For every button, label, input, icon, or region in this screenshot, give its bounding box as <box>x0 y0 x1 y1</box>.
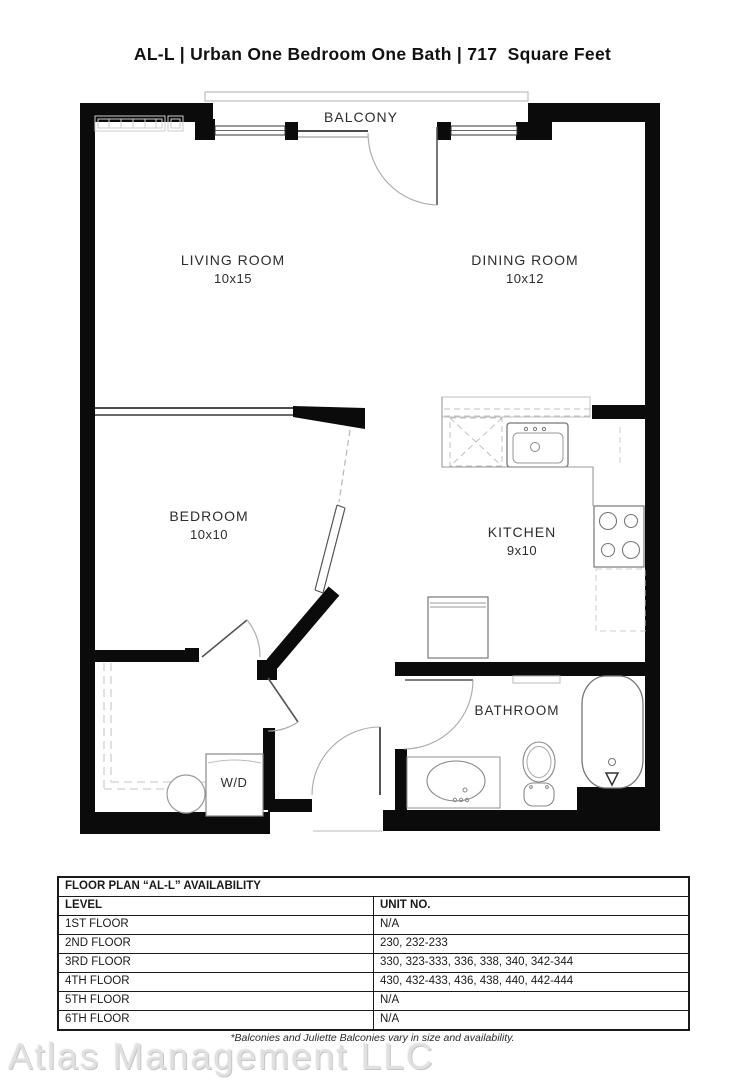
level-cell: 3RD FLOOR <box>58 954 374 973</box>
entry-door-arc <box>312 727 380 795</box>
bathtub-icon <box>582 676 643 788</box>
level-cell: 4TH FLOOR <box>58 973 374 992</box>
kitchen-label: KITCHEN <box>488 524 556 540</box>
floor-plan-diagram: BALCONY LIVING ROOM 10x15 DINING ROOM 10… <box>0 0 745 860</box>
upper-cabinets <box>442 397 590 417</box>
balcony-railing <box>205 92 528 101</box>
units-cell: 330, 323-333, 336, 338, 340, 342-344 <box>374 954 690 973</box>
stove-icon <box>594 506 644 567</box>
table-row: 2ND FLOOR 230, 232-233 <box>58 935 689 954</box>
dining-room-label: DINING ROOM <box>471 252 578 268</box>
water-heater-icon <box>167 775 205 813</box>
laundry-door-leaf <box>268 678 298 722</box>
table-row: 5TH FLOOR N/A <box>58 992 689 1011</box>
bedroom-partition-wall <box>93 408 293 415</box>
kitchen-dims: 9x10 <box>507 543 537 558</box>
table-row: 6TH FLOOR N/A <box>58 1011 689 1031</box>
table-row: 4TH FLOOR 430, 432-433, 436, 438, 440, 4… <box>58 973 689 992</box>
closet-door-arc <box>247 620 260 657</box>
walls <box>80 103 660 834</box>
level-cell: 6TH FLOOR <box>58 1011 374 1031</box>
fridge-icon <box>428 597 488 658</box>
level-cell: 2ND FLOOR <box>58 935 374 954</box>
availability-table: FLOOR PLAN “AL-L” AVAILABILITY LEVEL UNI… <box>57 876 690 1031</box>
washer-dryer-label: W/D <box>221 775 248 790</box>
units-cell: N/A <box>374 1011 690 1031</box>
balcony-door-arc <box>368 133 437 205</box>
table-row: 1ST FLOOR N/A <box>58 916 689 935</box>
units-cell: 430, 432-433, 436, 438, 440, 442-444 <box>374 973 690 992</box>
balcony-door-wall <box>298 131 368 137</box>
footnote: *Balconies and Juliette Balconies vary i… <box>0 1032 745 1044</box>
table-row: 3RD FLOOR 330, 323-333, 336, 338, 340, 3… <box>58 954 689 973</box>
living-room-dims: 10x15 <box>214 271 252 286</box>
bathroom-fixtures <box>407 676 643 808</box>
vanity-sink-icon <box>407 757 500 808</box>
doors <box>202 127 473 831</box>
column-header-level: LEVEL <box>58 897 374 916</box>
units-cell: N/A <box>374 916 690 935</box>
kitchen-sink-icon <box>507 423 568 467</box>
table-title: FLOOR PLAN “AL-L” AVAILABILITY <box>58 877 689 897</box>
bathroom-label: BATHROOM <box>475 703 560 718</box>
bedroom-diagonal-wall <box>272 591 334 664</box>
table-title-row: FLOOR PLAN “AL-L” AVAILABILITY <box>58 877 689 897</box>
bathroom-door-arc <box>404 680 473 749</box>
lower-cabinet <box>596 569 645 631</box>
sliding-door-opening <box>339 430 350 502</box>
bedroom-label: BEDROOM <box>169 508 248 524</box>
balcony-label: BALCONY <box>324 109 398 125</box>
toilet-icon <box>523 742 555 806</box>
bedroom-dims: 10x10 <box>190 527 228 542</box>
units-cell: 230, 232-233 <box>374 935 690 954</box>
column-header-units: UNIT NO. <box>374 897 690 916</box>
table-header-row: LEVEL UNIT NO. <box>58 897 689 916</box>
level-cell: 1ST FLOOR <box>58 916 374 935</box>
corner-cabinet-icon <box>450 418 502 466</box>
units-cell: N/A <box>374 992 690 1011</box>
level-cell: 5TH FLOOR <box>58 992 374 1011</box>
bedroom-sliding-door <box>315 505 345 593</box>
dining-room-dims: 10x12 <box>506 271 544 286</box>
living-room-label: LIVING ROOM <box>181 252 285 268</box>
closet-door-leaf <box>202 620 247 657</box>
shelf-niche <box>513 676 560 683</box>
